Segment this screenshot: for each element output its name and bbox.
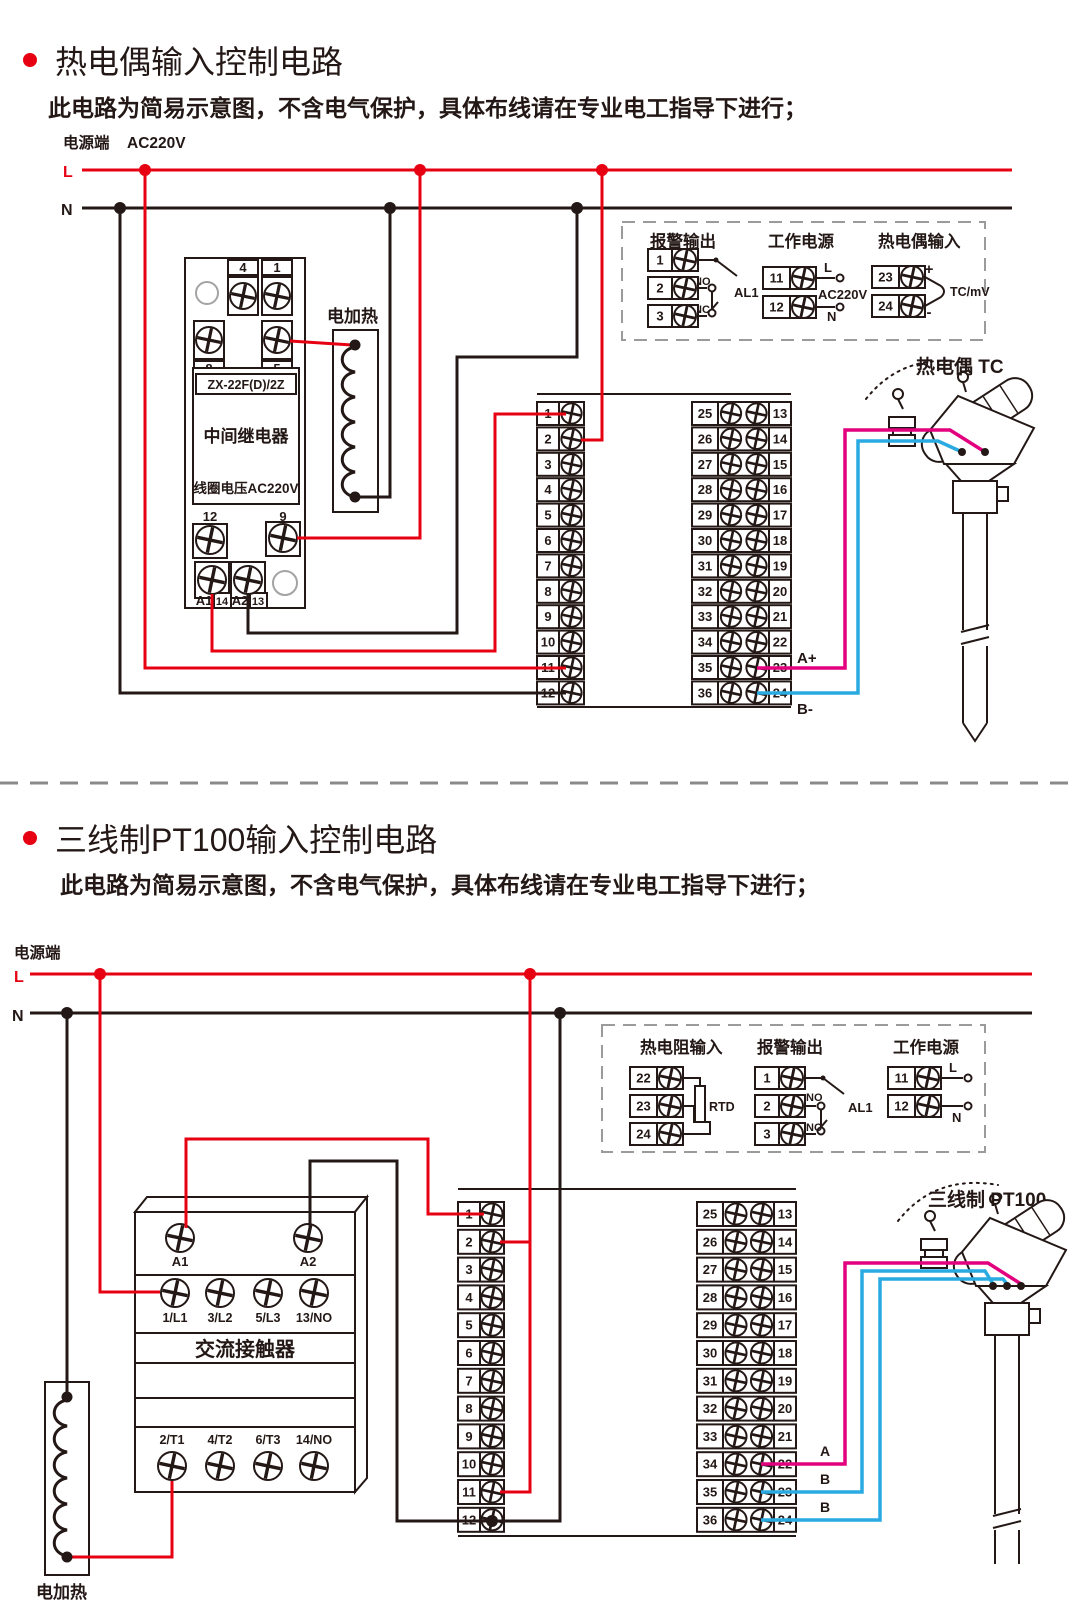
- intermediate-relay: 4 1 8 5 ZX-22F(D)/2Z 中间继电器 线圈电压AC220V 12…: [185, 258, 305, 608]
- junction-dot: [981, 448, 989, 456]
- terminal-number: 2: [763, 1099, 770, 1114]
- terminal-number: 8: [465, 1401, 472, 1416]
- screw-terminal-icon: [724, 1341, 747, 1364]
- terminal-number: 33: [703, 1429, 717, 1444]
- svg-text:6/T3: 6/T3: [255, 1433, 280, 1447]
- screw-terminal-icon: [750, 1369, 773, 1392]
- legend-terminal: 24: [872, 294, 925, 318]
- junction-dot: [524, 968, 536, 980]
- terminal-number: 8: [544, 584, 551, 599]
- terminal-row: 3321: [692, 605, 791, 628]
- legend-terminal: 3: [648, 304, 698, 328]
- legend2-input-title: 热电阻输入: [640, 1037, 723, 1057]
- terminal-number: 18: [778, 1346, 792, 1361]
- wire-label-b-minus: B-: [797, 701, 813, 718]
- screw-terminal-icon: [724, 1286, 747, 1309]
- screw-terminal-icon: [720, 529, 742, 551]
- screw-terminal-icon: [724, 1425, 747, 1448]
- terminal-row: 10: [537, 631, 584, 654]
- terminal-row: 7: [537, 554, 584, 577]
- screw-terminal-icon: [750, 1230, 773, 1253]
- svg-text:1: 1: [273, 260, 280, 275]
- terminal-row: 4: [537, 478, 584, 501]
- junction-dot: [62, 1552, 73, 1563]
- voltage-label: AC220V: [127, 135, 186, 152]
- screw-terminal-icon: [720, 428, 742, 450]
- tc-signal: TC/mV: [950, 285, 990, 299]
- terminal-row: 2715: [697, 1258, 796, 1282]
- terminal-row: 3018: [692, 529, 791, 552]
- terminal-number: 26: [703, 1234, 717, 1249]
- screw-terminal-icon: [480, 1258, 503, 1281]
- junction-dot: [62, 1392, 73, 1403]
- svg-text:14: 14: [216, 596, 229, 608]
- legend-terminal: 23: [872, 265, 925, 289]
- wiring-diagram-page: 热电偶输入控制电路 此电路为简易示意图，不含电气保护，具体布线请在专业电工指导下…: [0, 0, 1080, 1614]
- legend1-voltage: AC220V: [818, 287, 867, 302]
- bullet-icon: [23, 53, 37, 67]
- terminal-row: 8: [458, 1397, 504, 1421]
- terminal-row: 3119: [697, 1369, 796, 1393]
- screw-terminal-icon: [750, 1314, 773, 1337]
- screw-terminal-icon: [791, 266, 815, 290]
- terminal-number: 34: [698, 635, 713, 650]
- terminal-number: 34: [703, 1457, 718, 1472]
- terminal-row: 6: [537, 529, 584, 552]
- screw-terminal-icon: [560, 555, 582, 577]
- terminal-row: 5: [537, 504, 584, 527]
- junction-dot: [114, 202, 126, 214]
- screw-terminal-icon: [658, 1066, 682, 1090]
- junction-dot: [571, 202, 583, 214]
- wire-label-a-plus: A+: [797, 650, 817, 667]
- svg-text:13/NO: 13/NO: [296, 1311, 332, 1325]
- junction-dot: [989, 1282, 997, 1290]
- terminal-row: 6: [458, 1341, 504, 1365]
- terminal-number: 1: [763, 1071, 770, 1086]
- legend1-n: N: [827, 309, 836, 324]
- screw-terminal-icon: [724, 1453, 747, 1476]
- screw-terminal-icon: [658, 1122, 682, 1146]
- terminal-row: 2917: [697, 1313, 796, 1337]
- screw-terminal-icon: [724, 1369, 747, 1392]
- junction-dot: [1017, 1282, 1025, 1290]
- terminal-number: 13: [773, 406, 787, 421]
- terminal-number: 19: [778, 1373, 792, 1388]
- screw-terminal-icon: [720, 682, 742, 704]
- legend-terminal: 22: [630, 1066, 683, 1090]
- svg-text:12: 12: [203, 509, 217, 524]
- terminal-number: 25: [703, 1207, 717, 1222]
- terminal-number: 31: [703, 1373, 717, 1388]
- junction-dot: [139, 164, 151, 176]
- junction-dot: [1003, 1282, 1011, 1290]
- wire-22-to-pt100: [761, 1263, 1021, 1464]
- terminal-number: 11: [895, 1071, 909, 1086]
- terminal-row: 3220: [692, 580, 791, 603]
- wire-24-to-pt100: [761, 1279, 1007, 1520]
- junction-dot: [958, 448, 966, 456]
- terminal-row: 9: [537, 605, 584, 628]
- terminal-row: 2513: [692, 402, 791, 425]
- rtd-label: RTD: [709, 1100, 735, 1114]
- terminal-number: 27: [698, 457, 712, 472]
- terminal-number: 3: [544, 457, 551, 472]
- legend-terminal: 11: [763, 266, 816, 290]
- terminal-number: 2: [465, 1234, 472, 1249]
- terminal-number: 20: [778, 1401, 792, 1416]
- screw-terminal-icon: [745, 504, 767, 526]
- terminal-number: 10: [462, 1457, 476, 1472]
- junction-dot: [94, 968, 106, 980]
- section1-subtitle: 此电路为简易示意图，不含电气保护，具体布线请在专业电工指导下进行；: [48, 95, 807, 121]
- screw-terminal-icon: [780, 1094, 804, 1118]
- terminal-row: 9: [458, 1424, 504, 1448]
- terminal-row: 3018: [697, 1341, 796, 1365]
- screw-terminal-icon: [780, 1066, 804, 1090]
- relay-model: ZX-22F(D)/2Z: [207, 378, 284, 392]
- screw-terminal-icon: [745, 529, 767, 551]
- screw-terminal-icon: [750, 1341, 773, 1364]
- terminal-number: 3: [656, 309, 663, 324]
- svg-text:4: 4: [239, 260, 247, 275]
- terminal-number: 23: [636, 1099, 650, 1114]
- svg-text:A2: A2: [232, 593, 249, 608]
- screw-terminal-icon: [745, 479, 767, 501]
- svg-text:A1: A1: [196, 593, 213, 608]
- legend-terminal: 24: [630, 1122, 683, 1146]
- terminal-number: 14: [778, 1234, 793, 1249]
- terminal-row: 2: [537, 427, 584, 450]
- svg-text:1/L1: 1/L1: [162, 1311, 187, 1325]
- terminal-row: 3: [537, 453, 584, 476]
- screw-terminal-icon: [720, 580, 742, 602]
- contactor-name: 交流接触器: [195, 1337, 296, 1361]
- terminal-row: 2715: [692, 453, 791, 476]
- junction-dot: [596, 164, 608, 176]
- junction-dot: [350, 492, 361, 503]
- screw-terminal-icon: [745, 428, 767, 450]
- legend-terminal: 12: [763, 295, 816, 319]
- terminal-number: 13: [778, 1207, 792, 1222]
- terminal-row: 3119: [692, 554, 791, 577]
- terminal-number: 2: [656, 281, 663, 296]
- screw-terminal-icon: [750, 1202, 773, 1225]
- screw-terminal-icon: [480, 1341, 503, 1364]
- rail-n-label-2: N: [12, 1008, 24, 1025]
- svg-text:13: 13: [252, 596, 264, 608]
- heater-2: 电加热: [36, 1382, 89, 1602]
- screw-terminal-icon: [724, 1258, 747, 1281]
- terminal-number: 35: [703, 1485, 717, 1500]
- terminal-row: 2614: [692, 427, 791, 450]
- terminal-row: 3422: [692, 631, 791, 654]
- terminal-row: 2513: [697, 1202, 796, 1226]
- terminal-number: 31: [698, 558, 712, 573]
- terminal-number: 9: [544, 609, 551, 624]
- terminal-row: 4: [458, 1285, 504, 1309]
- legend-terminal: 12: [888, 1094, 941, 1118]
- rail-l-label: L: [63, 164, 73, 181]
- legend2-l: L: [949, 1060, 957, 1075]
- terminal-row: 5: [458, 1313, 504, 1337]
- power-side-label-2: 电源端: [14, 943, 61, 962]
- screw-terminal-icon: [720, 402, 742, 424]
- terminal-number: 21: [773, 609, 787, 624]
- al1-label: AL1: [734, 285, 759, 300]
- svg-text:2/T1: 2/T1: [159, 1433, 184, 1447]
- screw-terminal-icon: [724, 1202, 747, 1225]
- terminal-number: 22: [773, 635, 787, 650]
- legend1-l: L: [824, 260, 832, 275]
- bullet-icon: [23, 831, 37, 845]
- terminal-number: 27: [703, 1262, 717, 1277]
- terminal-number: 28: [703, 1290, 717, 1305]
- terminal-number: 5: [465, 1318, 472, 1333]
- screw-terminal-icon: [780, 1122, 804, 1146]
- screw-terminal-icon: [750, 1286, 773, 1309]
- terminal-number: 11: [770, 271, 784, 286]
- screw-terminal-icon: [745, 555, 767, 577]
- screw-terminal-icon: [673, 248, 697, 272]
- terminal-number: 5: [544, 508, 551, 523]
- screw-terminal-icon: [560, 529, 582, 551]
- terminal-number: 35: [698, 660, 712, 675]
- terminal-number: 25: [698, 406, 712, 421]
- screw-terminal-icon: [673, 304, 697, 328]
- terminal-number: 20: [773, 584, 787, 599]
- legend-terminal: 23: [630, 1094, 683, 1118]
- junction-dot: [61, 1007, 73, 1019]
- terminal-number: 12: [894, 1099, 908, 1114]
- wire-label-b1: B: [820, 1471, 830, 1487]
- svg-text:5/L3: 5/L3: [255, 1311, 280, 1325]
- screw-terminal-icon: [750, 1258, 773, 1281]
- junction-dot: [554, 1007, 566, 1019]
- al1-label-2: AL1: [848, 1100, 873, 1115]
- screw-terminal-icon: [900, 294, 924, 318]
- screw-terminal-icon: [750, 1425, 773, 1448]
- terminal-number: 6: [465, 1346, 472, 1361]
- screw-terminal-icon: [745, 453, 767, 475]
- terminal-number: 19: [773, 558, 787, 573]
- terminal-row: 3321: [697, 1424, 796, 1448]
- heater-1: 电加热: [327, 306, 378, 512]
- terminal-number: 29: [703, 1318, 717, 1333]
- screw-terminal-icon: [560, 479, 582, 501]
- screw-terminal-icon: [720, 555, 742, 577]
- screw-terminal-icon: [658, 1094, 682, 1118]
- terminal-number: 12: [769, 300, 783, 315]
- relay-coil-voltage: 线圈电压AC220V: [193, 480, 298, 496]
- legend-terminal: 1: [755, 1066, 805, 1090]
- terminal-number: 22: [636, 1071, 650, 1086]
- screw-terminal-icon: [745, 580, 767, 602]
- sensor2-label: 三线制 PT100: [928, 1188, 1046, 1211]
- terminal-number: 24: [878, 299, 893, 314]
- power-side-label: 电源端: [63, 133, 110, 152]
- screw-terminal-icon: [750, 1397, 773, 1420]
- section2-title: 三线制PT100输入控制电路: [55, 822, 437, 858]
- legend-terminal: 2: [755, 1094, 805, 1118]
- terminal-number: 7: [465, 1373, 472, 1388]
- screw-terminal-icon: [724, 1314, 747, 1337]
- terminal-row: 2816: [697, 1285, 796, 1309]
- screw-terminal-icon: [916, 1066, 940, 1090]
- screw-terminal-icon: [745, 631, 767, 653]
- terminal-number: 11: [462, 1485, 476, 1500]
- legend-terminal: 3: [755, 1122, 805, 1146]
- screw-terminal-icon: [560, 453, 582, 475]
- terminal-row: 2816: [692, 478, 791, 501]
- terminal-number: 18: [773, 533, 787, 548]
- terminal-number: 15: [773, 457, 787, 472]
- wire-label-a: A: [820, 1443, 830, 1459]
- wire-l-to-2: [581, 170, 602, 440]
- junction-dot: [384, 202, 396, 214]
- screw-terminal-icon: [720, 479, 742, 501]
- relay-name: 中间继电器: [204, 426, 290, 446]
- screw-terminal-icon: [480, 1425, 503, 1448]
- terminal-number: 30: [698, 533, 712, 548]
- terminal-number: 32: [703, 1401, 717, 1416]
- terminal-row: 8: [537, 580, 584, 603]
- terminal-number: 10: [541, 635, 555, 650]
- junction-dot: [486, 1515, 498, 1527]
- screw-terminal-icon: [720, 631, 742, 653]
- terminal-row: 2614: [697, 1230, 796, 1254]
- screw-terminal-icon: [724, 1397, 747, 1420]
- terminal-number: 3: [763, 1127, 770, 1142]
- terminal-number: 29: [698, 508, 712, 523]
- svg-text:4/T2: 4/T2: [207, 1433, 232, 1447]
- screw-terminal-icon: [916, 1094, 940, 1118]
- terminal-number: 2: [544, 431, 551, 446]
- terminal-number: 3: [465, 1262, 472, 1277]
- terminal-row: 3220: [697, 1397, 796, 1421]
- screw-terminal-icon: [724, 1480, 747, 1503]
- screw-terminal-icon: [720, 656, 742, 678]
- legend-terminal: 11: [888, 1066, 941, 1090]
- screw-terminal-icon: [560, 428, 582, 450]
- screw-terminal-icon: [480, 1286, 503, 1309]
- terminal-number: 21: [778, 1429, 792, 1444]
- terminal-number: 17: [773, 508, 787, 523]
- legend1-input-title: 热电偶输入: [878, 231, 961, 251]
- terminal-row: 7: [458, 1369, 504, 1393]
- terminal-number: 7: [544, 558, 551, 573]
- screw-terminal-icon: [900, 265, 924, 289]
- terminal-number: 6: [544, 533, 551, 548]
- svg-text:3/L2: 3/L2: [207, 1311, 232, 1325]
- terminal-row: 2917: [692, 504, 791, 527]
- terminal-number: 28: [698, 482, 712, 497]
- legend2-power-title: 工作电源: [893, 1037, 960, 1057]
- terminal-number: 36: [703, 1512, 717, 1527]
- screw-terminal-icon: [560, 504, 582, 526]
- terminal-number: 23: [878, 270, 892, 285]
- terminal-row: 3: [458, 1258, 504, 1282]
- terminal-number: 15: [778, 1262, 792, 1277]
- screw-terminal-icon: [720, 453, 742, 475]
- screw-terminal-icon: [720, 606, 742, 628]
- rail-l-label-2: L: [14, 969, 24, 986]
- screw-terminal-icon: [560, 606, 582, 628]
- terminal-number: 26: [698, 431, 712, 446]
- terminal-row: 2: [458, 1230, 504, 1254]
- tc-minus: -: [927, 304, 932, 321]
- screw-terminal-icon: [791, 295, 815, 319]
- terminal-number: 16: [773, 482, 787, 497]
- rail-n-label: N: [61, 202, 73, 219]
- wire-label-b2: B: [820, 1499, 830, 1515]
- screw-terminal-icon: [480, 1369, 503, 1392]
- screw-terminal-icon: [745, 402, 767, 424]
- screw-terminal-icon: [480, 1314, 503, 1337]
- heater-2-label: 电加热: [36, 1582, 87, 1602]
- legend2-alarm-title: 报警输出: [757, 1037, 823, 1057]
- heater-1-label: 电加热: [327, 306, 378, 326]
- screw-terminal-icon: [560, 580, 582, 602]
- screw-terminal-icon: [720, 504, 742, 526]
- screw-terminal-icon: [745, 606, 767, 628]
- terminal-number: 17: [778, 1318, 792, 1333]
- terminal-row: 11: [458, 1480, 504, 1504]
- section2-subtitle: 此电路为简易示意图，不含电气保护，具体布线请在专业电工指导下进行；: [60, 872, 819, 898]
- terminal-number: 36: [698, 685, 712, 700]
- diagram-canvas: 热电偶输入控制电路 此电路为简易示意图，不含电气保护，具体布线请在专业电工指导下…: [0, 0, 1080, 1614]
- terminal-number: 30: [703, 1346, 717, 1361]
- terminal-number: 4: [465, 1290, 473, 1305]
- svg-text:A2: A2: [300, 1254, 317, 1269]
- terminal-number: 16: [778, 1290, 792, 1305]
- terminal-number: 33: [698, 609, 712, 624]
- screw-terminal-icon: [560, 631, 582, 653]
- legend2-n: N: [952, 1110, 961, 1125]
- terminal-row: 10: [458, 1452, 504, 1476]
- terminal-number: 4: [544, 482, 552, 497]
- legend1-power-title: 工作电源: [768, 231, 835, 251]
- screw-terminal-icon: [724, 1508, 747, 1531]
- screw-terminal-icon: [724, 1230, 747, 1253]
- svg-text:14/NO: 14/NO: [296, 1433, 332, 1447]
- screw-terminal-icon: [673, 276, 697, 300]
- terminal-number: 9: [465, 1429, 472, 1444]
- junction-dot: [350, 340, 361, 351]
- terminal-number: 1: [656, 253, 663, 268]
- junction-dot: [414, 164, 426, 176]
- terminal-number: 14: [773, 431, 788, 446]
- screw-terminal-icon: [480, 1397, 503, 1420]
- pt100-probe: 三线制 PT100: [898, 1183, 1070, 1564]
- thermocouple-probe: 热电偶 TC: [866, 355, 1038, 741]
- section1-title: 热电偶输入控制电路: [55, 44, 343, 80]
- legend-terminal: 2: [648, 276, 698, 300]
- svg-text:A1: A1: [172, 1254, 189, 1269]
- legend-terminal: 1: [648, 248, 698, 272]
- terminal-number: 32: [698, 584, 712, 599]
- screw-terminal-icon: [480, 1453, 503, 1476]
- terminal-number: 24: [636, 1127, 651, 1142]
- sensor1-label: 热电偶 TC: [916, 355, 1004, 378]
